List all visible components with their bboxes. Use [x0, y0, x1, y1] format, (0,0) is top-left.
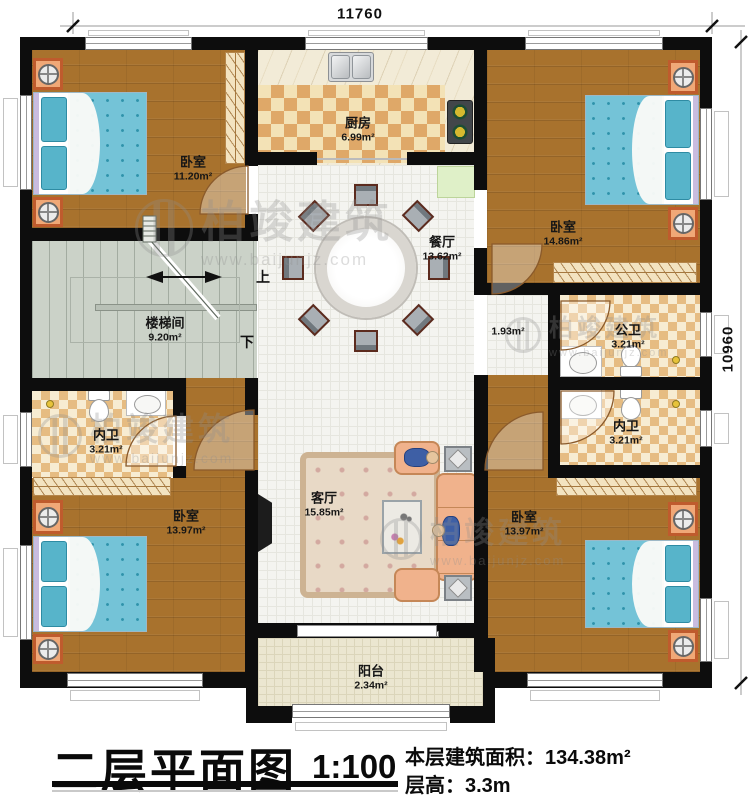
window-sill — [530, 690, 660, 701]
room-label-bedroom-tr: 卧室 14.86m² — [543, 219, 582, 248]
nightstand — [668, 60, 698, 94]
dimension-right: 10960 — [720, 326, 737, 373]
window-sill — [295, 722, 447, 731]
wardrobe-bedroom-bl — [33, 477, 171, 496]
nightstand — [668, 630, 698, 662]
lamp-icon — [38, 64, 59, 85]
window — [292, 704, 450, 718]
bed-pillows — [41, 97, 67, 190]
wall — [246, 638, 258, 723]
bed-sheet — [632, 96, 664, 204]
window-sill — [714, 413, 729, 444]
wall — [474, 50, 487, 190]
wall — [258, 706, 292, 723]
kitchen-door-mat — [437, 166, 475, 198]
wall — [173, 466, 186, 478]
side-table — [444, 446, 472, 472]
window — [20, 412, 32, 467]
shower-knob — [46, 400, 54, 408]
floor-plan-page: 柏竣建筑 www.baijunjz.com 柏竣建筑 www.baijunjz.… — [0, 0, 750, 799]
wall — [483, 638, 495, 723]
window — [305, 37, 428, 50]
stair-up-label: 上 — [256, 267, 270, 287]
dining-chair — [354, 184, 378, 206]
sink-public-bath — [560, 346, 602, 377]
nightstand — [33, 500, 63, 534]
window — [20, 95, 32, 190]
bed-headboard — [34, 537, 39, 631]
window-sill — [308, 30, 425, 36]
wall — [407, 152, 474, 165]
sink-ensuite-left — [126, 390, 166, 416]
bed-bedroom-bl — [33, 536, 147, 632]
person — [432, 512, 462, 552]
balcony-door-opening — [297, 625, 437, 637]
sink-ensuite-right — [560, 389, 602, 419]
kitchen-threshold — [317, 158, 407, 160]
wall — [245, 50, 258, 166]
wardrobe-bedroom-tl — [225, 52, 245, 164]
room-label-stairwell: 楼梯间 9.20m² — [145, 315, 184, 344]
window — [527, 673, 663, 687]
bed-pillows — [41, 541, 67, 627]
room-label-ensuite-right: 内卫 3.21m² — [609, 418, 642, 447]
room-label-bedroom-br: 卧室 13.97m² — [504, 509, 543, 538]
person — [404, 446, 444, 470]
room-label-balcony: 阳台 2.34m² — [354, 663, 387, 692]
room-label-kitchen: 厨房 6.99m² — [341, 115, 374, 144]
floor-height-text: 层高：3.3m — [405, 769, 511, 798]
bed-sheet — [632, 541, 664, 627]
armchair — [394, 568, 440, 602]
lamp-icon — [38, 507, 59, 528]
bed-headboard — [34, 93, 39, 194]
dining-chair — [282, 256, 304, 280]
room-label-dining: 餐厅 13.62m² — [422, 234, 461, 263]
wall — [258, 152, 317, 165]
bed-headboard — [693, 541, 698, 627]
dining-table — [316, 218, 416, 318]
room-label-public-bath: 公卫 3.21m² — [611, 322, 644, 351]
toilet-ensuite-right — [618, 388, 644, 420]
lamp-icon — [38, 202, 59, 223]
nightstand — [33, 197, 63, 227]
window — [700, 312, 712, 357]
nightstand — [33, 634, 63, 664]
window — [85, 37, 192, 50]
shower-knob — [672, 400, 680, 408]
bed-bedroom-tr — [585, 95, 699, 205]
kitchen-sink — [328, 52, 374, 82]
room-label-ensuite-left: 内卫 3.21m² — [89, 427, 122, 456]
tv — [258, 494, 272, 552]
lamp-icon — [673, 509, 694, 530]
window-sill — [714, 111, 729, 197]
dining-chair — [354, 330, 378, 352]
window — [700, 108, 712, 200]
shower-knob — [672, 356, 680, 364]
window-sill — [3, 415, 18, 464]
floor-nook-right — [487, 375, 548, 478]
window — [67, 673, 203, 687]
floor-area-text: 本层建筑面积：134.38m² — [405, 741, 631, 770]
dimension-top: 11760 — [337, 6, 383, 23]
nightstand — [668, 207, 698, 240]
wardrobe-bedroom-br — [556, 477, 697, 496]
room-label-bedroom-tl: 卧室 11.20m² — [174, 154, 213, 183]
room-label-corridor: 1.93m² — [491, 325, 524, 338]
wall — [450, 706, 483, 723]
wall — [20, 378, 173, 391]
nightstand — [668, 502, 698, 536]
wardrobe-bedroom-tr — [553, 262, 697, 283]
window — [20, 545, 32, 640]
wall — [548, 377, 712, 390]
window-sill — [88, 30, 189, 36]
window-sill — [714, 601, 729, 659]
bed-pillows — [665, 100, 691, 200]
toilet-ensuite-left — [86, 390, 112, 422]
window-sill — [528, 30, 660, 36]
window-sill — [70, 690, 200, 701]
lamp-icon — [38, 639, 59, 660]
window-sill — [3, 98, 18, 187]
nightstand — [33, 58, 63, 90]
lamp-icon — [673, 67, 694, 88]
wall — [173, 378, 186, 416]
wall — [245, 378, 258, 415]
title-underline — [52, 781, 398, 787]
wall — [548, 465, 712, 478]
room-label-bedroom-bl: 卧室 13.97m² — [166, 508, 205, 537]
lamp-icon — [673, 213, 694, 234]
bed-pillows — [665, 545, 691, 623]
wall — [474, 283, 712, 295]
title-underline-light — [52, 790, 398, 792]
coffee-table — [382, 500, 422, 554]
side-table — [444, 575, 472, 601]
bed-bedroom-br — [585, 540, 699, 628]
window — [700, 410, 712, 447]
bed-headboard — [693, 96, 698, 204]
wall — [20, 228, 258, 241]
stair-down-label: 下 — [240, 332, 254, 352]
bed-bedroom-tl — [33, 92, 147, 195]
room-label-living: 客厅 15.85m² — [304, 490, 343, 519]
window — [700, 598, 712, 662]
window-sill — [3, 548, 18, 637]
window — [525, 37, 663, 50]
stove — [447, 100, 473, 144]
lamp-icon — [673, 636, 694, 657]
